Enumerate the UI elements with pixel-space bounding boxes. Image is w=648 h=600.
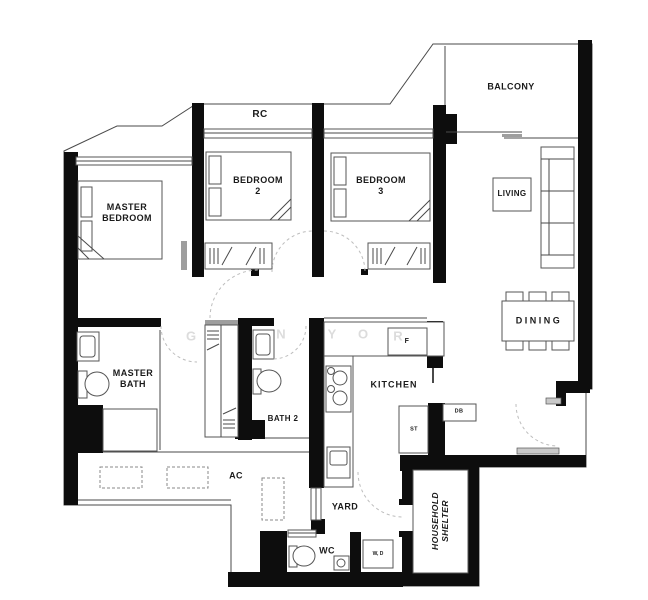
wall-segment [235, 420, 265, 439]
burner [328, 386, 335, 393]
basin-bowl [256, 334, 270, 355]
wall-segment [479, 455, 586, 467]
ac-condenser [100, 467, 142, 488]
wall-segment [402, 536, 413, 578]
label-rc-ledge: RC [252, 109, 267, 121]
label-master-bath: MASTER BATH [113, 368, 153, 390]
ac-condenser [262, 478, 284, 520]
entrance-door-hinge [546, 398, 561, 404]
label-living: LIVING [497, 189, 526, 199]
ac-condenser [167, 467, 208, 488]
wall-segment [260, 531, 287, 576]
sink-bowl [330, 451, 347, 465]
label-line: SHELTER [440, 492, 450, 550]
floor-plan-drawing [0, 0, 648, 600]
window-sill [181, 241, 187, 270]
wall-segment [228, 572, 403, 587]
wall-segment [252, 318, 274, 326]
label-store: ST [410, 427, 418, 434]
window-sill [205, 320, 238, 325]
label-line: BEDROOM [356, 175, 406, 186]
basin-bowl [80, 336, 95, 357]
label-kitchen: KITCHEN [371, 380, 418, 391]
label-master-bedroom: MASTER BEDROOM [102, 202, 152, 224]
label-line: MASTER [113, 368, 153, 379]
wall-segment [436, 114, 457, 144]
toilet-bowl [85, 372, 109, 396]
burner [333, 371, 347, 385]
label-washer-dryer: W, D [373, 551, 384, 557]
watermark-letter: G [186, 329, 196, 344]
watermark-letter: R [393, 329, 402, 344]
label-line: HOUSEHOLD [430, 492, 440, 550]
burner [333, 391, 347, 405]
pillow [334, 157, 346, 185]
label-line: 2 [233, 186, 283, 197]
wall-segment [64, 318, 161, 327]
label-line: BEDROOM [102, 213, 152, 224]
label-bath2: BATH 2 [268, 414, 299, 424]
watermark-letter: O [358, 327, 368, 342]
wall-segment [578, 40, 592, 389]
label-db: DB [455, 409, 464, 416]
pillow [209, 188, 221, 216]
wardrobe-bedroom2 [205, 243, 272, 269]
door-swing-yard [358, 472, 403, 517]
wall-segment [428, 403, 445, 460]
label-wc: WC [319, 546, 335, 557]
label-yard: YARD [332, 502, 358, 513]
watermark-letter: Y [328, 327, 337, 342]
door-swing-bedroom2 [272, 231, 313, 272]
floor-plan: G N Y O R RC MASTER BEDROOM BEDROOM 2 BE… [0, 0, 648, 600]
wall-segment [402, 471, 413, 502]
label-ac-ledge: AC [229, 471, 243, 482]
wall-segment [309, 318, 324, 488]
wall-segment [402, 573, 479, 586]
label-line: BATH [113, 379, 153, 390]
ac-units [100, 467, 284, 520]
label-dining: DINING [516, 316, 563, 327]
pillow [81, 187, 92, 217]
entrance-door-leaf [517, 448, 559, 454]
pillow [209, 156, 221, 184]
label-line: MASTER [102, 202, 152, 213]
wall-segment [312, 103, 324, 277]
shower-master-bath [103, 409, 157, 451]
wall-segment [350, 532, 361, 575]
basin-bowl [337, 559, 345, 567]
door-swing-master-bedroom [210, 270, 258, 318]
wall-segment [468, 471, 479, 585]
sliding-door-handle [502, 134, 522, 137]
wall-segment [192, 103, 204, 277]
pillow [334, 189, 346, 217]
door-swing-bedroom3 [324, 231, 365, 272]
wall-segment [64, 405, 103, 453]
burner [328, 368, 335, 375]
door-swing-entrance [516, 404, 558, 446]
label-line: BEDROOM [233, 175, 283, 186]
watermark-letter: N [276, 327, 285, 342]
label-balcony: BALCONY [487, 82, 534, 93]
label-fridge: F [405, 338, 410, 346]
toilet-bowl [293, 546, 315, 566]
label-household-shelter: HOUSEHOLD SHELTER [430, 492, 450, 550]
toilet-bowl [257, 370, 281, 392]
label-bedroom3: BEDROOM 3 [356, 175, 406, 197]
sofa [541, 147, 574, 268]
label-line: 3 [356, 186, 406, 197]
wall-segment [556, 381, 590, 393]
label-bedroom2: BEDROOM 2 [233, 175, 283, 197]
